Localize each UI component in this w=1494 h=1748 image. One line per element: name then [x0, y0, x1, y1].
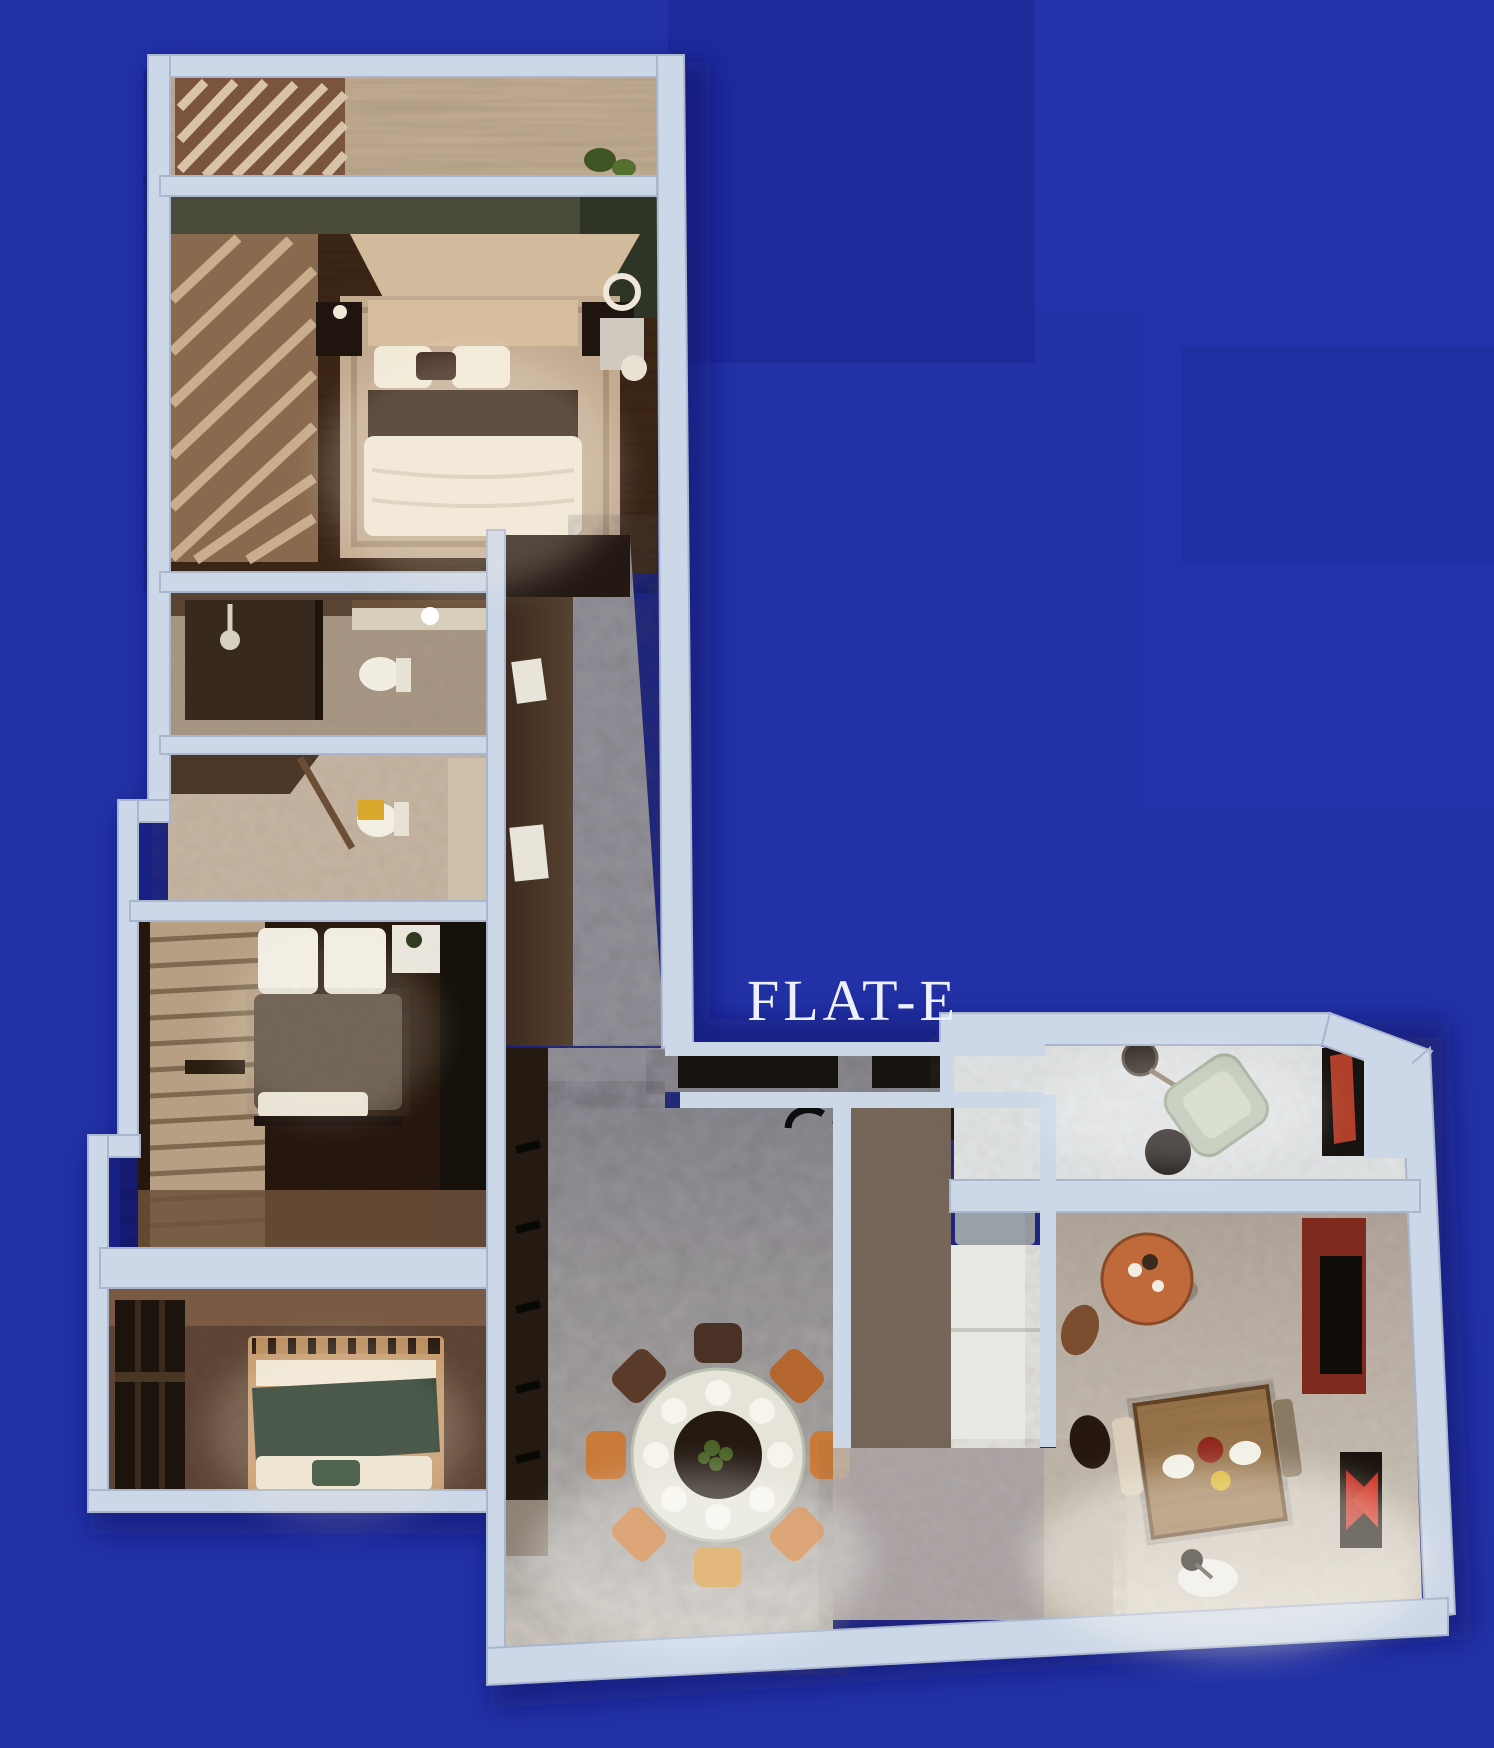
- bathroom: [168, 592, 488, 738]
- red-clothing: [1330, 1052, 1356, 1144]
- sphere-lamp-icon: [621, 355, 647, 381]
- display-cabinet: [505, 1048, 548, 1556]
- shower-head-icon: [220, 630, 240, 650]
- wall-left-mid: [118, 800, 138, 1140]
- plant-icon: [584, 148, 616, 172]
- basin-icon: [421, 607, 439, 625]
- red-wardrobe: [1322, 1048, 1364, 1156]
- wall-frame: [511, 658, 547, 704]
- background-patch-top-right: [1035, 0, 1494, 310]
- plant-icon: [406, 932, 422, 948]
- wall-kitchen-right: [1040, 1095, 1056, 1447]
- wall-top: [148, 55, 684, 77]
- toilet-tank: [394, 802, 409, 836]
- cup-icon: [1128, 1263, 1142, 1277]
- yellow-towel: [358, 800, 384, 820]
- wall-left-lower: [88, 1135, 108, 1512]
- wall-counter-top-edge: [665, 1042, 1045, 1056]
- plant-icon: [612, 159, 636, 177]
- floorplan-canvas: FLAT-E: [0, 0, 1494, 1748]
- wall-internal-vertical: [487, 530, 505, 1650]
- wall-wing-top: [940, 1013, 1330, 1045]
- background-patch-top-center: [668, 0, 1035, 363]
- corridor-floor-lower: [548, 1048, 665, 1110]
- dining-chair: [586, 1431, 626, 1479]
- shower-glass: [315, 600, 323, 720]
- counter-dark: [678, 1056, 838, 1088]
- wc: [168, 754, 488, 903]
- wall-study-right-pillar: [1364, 1048, 1412, 1158]
- wall-study-bottom: [950, 1180, 1420, 1212]
- wall-left-upper: [148, 55, 170, 817]
- lamp-icon: [333, 305, 347, 319]
- base-cabinet: [951, 1245, 1040, 1448]
- tv-icon: [1320, 1256, 1362, 1374]
- lit-floor-band: [138, 1190, 492, 1248]
- bowl-icon: [1142, 1254, 1158, 1270]
- wall-wc-bottom: [130, 901, 490, 921]
- wall-frame: [509, 824, 548, 881]
- wall-study-left: [940, 1045, 954, 1105]
- cup-icon: [1152, 1280, 1164, 1292]
- kitchen-floor: [851, 1108, 951, 1448]
- headboard: [368, 300, 578, 346]
- wall-bathroom-divider: [160, 736, 490, 754]
- balcony: [168, 75, 657, 178]
- slat-wardrobe: [168, 234, 318, 562]
- wall-kitchen-left: [833, 1108, 851, 1448]
- wc-shelf: [448, 758, 486, 900]
- dining-chair: [694, 1323, 742, 1363]
- wall-balcony-divider: [160, 176, 657, 196]
- toilet-icon: [359, 657, 401, 691]
- background-patch-mid-right: [1182, 347, 1494, 562]
- wall-bedroom2-bottom: [100, 1248, 492, 1288]
- vanity-edge: [352, 600, 488, 608]
- toilet-tank: [396, 658, 411, 692]
- shower: [185, 600, 315, 720]
- flat-label: FLAT-E: [747, 968, 959, 1033]
- wall-counter-inner: [680, 1092, 1045, 1108]
- slat-wardrobe: [175, 78, 345, 176]
- dark-wardrobe: [115, 1300, 185, 1490]
